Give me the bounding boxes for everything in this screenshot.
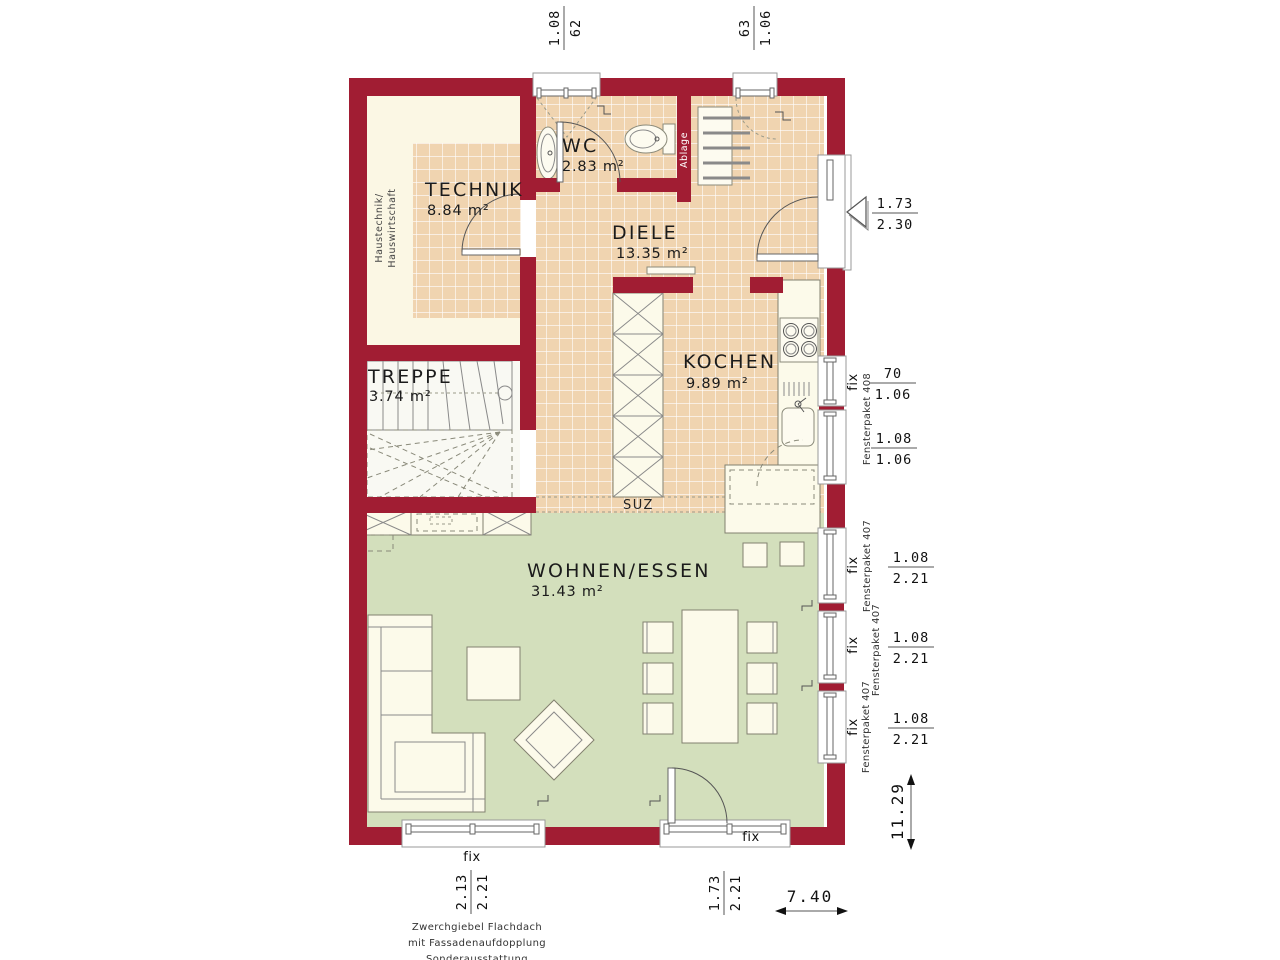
dining-table	[682, 610, 738, 743]
label-fix-bottom-window: fix	[463, 850, 480, 865]
dim-kitchen-window-lower: 1.08 1.06	[871, 431, 917, 468]
window-bottom-left	[402, 820, 545, 847]
label-ablage: Ablage	[679, 132, 690, 168]
dim-bottom-door: 1.73 2.21	[707, 871, 744, 915]
dim-bottom-window-left: 2.13 2.21	[454, 870, 491, 914]
dim-top-window-right: 63 1.06	[737, 6, 774, 50]
label-fensterpaket-407-1: Fensterpaket 407	[862, 520, 873, 612]
wall-left	[349, 78, 367, 845]
terrace-door-leaf	[668, 768, 675, 823]
stool	[780, 542, 804, 566]
dim-value: 63	[737, 19, 753, 37]
dim-living-window-1: 1.08 2.21	[888, 550, 934, 587]
label-haustechnik-1: Haustechnik/	[374, 193, 385, 263]
niche-shelf	[647, 267, 695, 274]
dim-value: 70	[884, 366, 902, 382]
footer-line-3: Sonderausstattung	[426, 954, 528, 960]
dim-kitchen-window-upper: 70 1.06	[870, 366, 916, 403]
footer-note: Zwerchgiebel Flachdach mit Fassadenaufdo…	[408, 922, 546, 960]
dim-overall-width: 7.40	[775, 887, 848, 915]
label-kochen: KOCHEN	[683, 351, 776, 373]
entrance-door-leaf	[757, 254, 818, 261]
wall-bottom-1	[349, 827, 402, 845]
window-living-3	[818, 691, 846, 763]
label-fix-living-1: fix	[846, 556, 861, 573]
label-technik-area: 8.84 m²	[427, 203, 489, 219]
kitchen-counter-bottom	[725, 465, 820, 533]
dim-value: 2.21	[893, 651, 930, 667]
dim-top-window-left: 1.08 62	[547, 6, 584, 50]
dim-value: 1.08	[893, 630, 930, 646]
dim-value: 11.29	[888, 782, 907, 840]
label-kochen-area: 9.89 m²	[686, 376, 748, 392]
dim-value: 1.73	[707, 875, 723, 912]
dim-value: 2.21	[728, 875, 744, 912]
washbasin	[537, 127, 559, 179]
floor-plan-svg: TECHNIK 8.84 m² WC 2.83 m² DIELE 13.35 m…	[0, 0, 1280, 960]
label-treppe: TREPPE	[367, 366, 453, 388]
label-fensterpaket-408: Fensterpaket 408	[862, 373, 873, 465]
dim-value: 62	[568, 19, 584, 37]
label-suz: SUZ	[623, 498, 654, 513]
label-fix-living-2: fix	[846, 636, 861, 653]
label-fensterpaket-407-2: Fensterpaket 407	[871, 604, 882, 696]
wall-kochen-stub	[750, 277, 783, 293]
technik-tile-inset	[413, 143, 521, 318]
label-diele-area: 13.35 m²	[616, 246, 688, 262]
label-diele: DIELE	[612, 222, 678, 244]
dim-value: 2.21	[893, 732, 930, 748]
label-fensterpaket-407-3: Fensterpaket 407	[861, 681, 872, 773]
pier-living-2	[819, 683, 844, 691]
kitchen-tall-cabinets	[613, 293, 663, 497]
stool	[743, 543, 767, 567]
label-wc-area: 2.83 m²	[562, 159, 624, 175]
wall-treppe-bottom	[349, 497, 536, 513]
wall-wc-bottom-2	[617, 178, 677, 192]
dim-value: 1.08	[893, 711, 930, 727]
label-haustechnik-2: Hauswirtschaft	[387, 188, 398, 267]
label-wohnen-essen: WOHNEN/ESSEN	[527, 560, 711, 582]
wall-top-1	[349, 78, 533, 96]
coffee-table	[467, 647, 520, 700]
dim-entrance-door: 1.73 2.30	[872, 196, 918, 233]
wall-wc-bottom-1	[520, 178, 560, 192]
stove	[780, 318, 818, 362]
wall-bottom-2	[545, 827, 660, 845]
dim-value: 2.21	[893, 571, 930, 587]
dim-value: 1.08	[547, 10, 563, 47]
dim-value: 1.06	[875, 387, 912, 403]
dim-value: 2.13	[454, 874, 470, 911]
window-kitchen-upper	[818, 356, 846, 406]
label-fix-living-3: fix	[846, 718, 861, 735]
wall-right-1	[827, 78, 845, 155]
dim-value: 1.06	[876, 452, 913, 468]
footer-line-2: mit Fassadenaufdopplung	[408, 938, 546, 949]
wall-diele-kochen	[613, 277, 693, 293]
pier-living-1	[819, 603, 844, 611]
dim-value: 2.21	[475, 874, 491, 911]
label-wc: WC	[562, 135, 598, 157]
toilet	[625, 124, 675, 154]
dim-value: 2.30	[877, 217, 914, 233]
wall-treppe-right	[520, 361, 536, 430]
dim-value: 1.06	[758, 10, 774, 47]
label-fix-kitchen: fix	[846, 373, 861, 390]
dim-overall-depth: 11.29	[888, 774, 915, 850]
dim-value: 7.40	[787, 887, 834, 906]
dim-value: 1.73	[877, 196, 914, 212]
wall-top-2	[600, 78, 733, 96]
window-kitchen-lower	[818, 410, 846, 484]
dim-value: 1.08	[893, 550, 930, 566]
wall-right-3	[827, 484, 845, 528]
floor-plan-page: TECHNIK 8.84 m² WC 2.83 m² DIELE 13.35 m…	[0, 0, 1280, 960]
dim-living-window-2: 1.08 2.21	[888, 630, 934, 667]
label-fix-terrace: fix	[742, 830, 759, 845]
label-wohnen-essen-area: 31.43 m²	[531, 584, 603, 600]
label-treppe-area: 3.74 m²	[369, 389, 431, 405]
footer-line-1: Zwerchgiebel Flachdach	[412, 922, 542, 933]
label-technik: TECHNIK	[424, 179, 524, 201]
wall-technik-treppe	[349, 345, 536, 361]
dim-living-window-3: 1.08 2.21	[888, 711, 934, 748]
wall-right-4	[827, 763, 845, 845]
wall-right-2	[827, 268, 845, 356]
dim-value: 1.08	[876, 431, 913, 447]
